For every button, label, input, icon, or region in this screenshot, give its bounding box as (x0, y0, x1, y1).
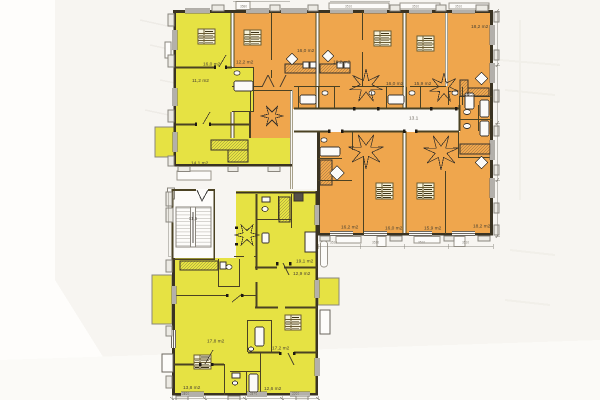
svg-text:3510: 3510 (418, 241, 425, 245)
svg-text:11,5: 11,5 (189, 216, 198, 221)
svg-text:13.1: 13.1 (409, 116, 419, 122)
svg-text:18,2 m2: 18,2 m2 (471, 24, 489, 30)
svg-text:12,9 m2: 12,9 m2 (293, 271, 311, 277)
svg-text:3510: 3510 (330, 241, 337, 245)
svg-text:3510: 3510 (345, 5, 352, 9)
svg-text:16,0 m2: 16,0 m2 (385, 226, 403, 232)
svg-text:16,2 m2: 16,2 m2 (333, 60, 351, 66)
svg-text:12,2 m2: 12,2 m2 (236, 60, 254, 66)
svg-text:12,6 m2: 12,6 m2 (264, 386, 282, 392)
svg-text:13,8 m2: 13,8 m2 (183, 385, 201, 391)
svg-text:15,9 m2: 15,9 m2 (414, 81, 432, 87)
svg-text:2980: 2980 (292, 392, 299, 396)
svg-text:11,2 m2: 11,2 m2 (192, 78, 209, 84)
svg-text:19,1 m2: 19,1 m2 (296, 259, 314, 265)
svg-text:17,8 m2: 17,8 m2 (207, 339, 225, 345)
svg-text:17,2 m2: 17,2 m2 (272, 346, 290, 352)
svg-text:3510: 3510 (372, 241, 379, 245)
svg-text:14,1 m2: 14,1 m2 (191, 161, 209, 167)
svg-text:15,9 m2: 15,9 m2 (424, 226, 442, 232)
svg-text:18,2 m2: 18,2 m2 (473, 224, 491, 230)
svg-text:3510: 3510 (462, 241, 469, 245)
svg-text:16,0 m2: 16,0 m2 (386, 81, 404, 87)
svg-text:3580: 3580 (182, 392, 189, 396)
svg-text:16,0 m2: 16,0 m2 (203, 62, 221, 68)
svg-text:3510: 3510 (412, 5, 419, 9)
svg-text:3640: 3640 (250, 392, 257, 396)
svg-text:3510: 3510 (455, 5, 462, 9)
svg-text:16,2 m2: 16,2 m2 (341, 225, 359, 231)
svg-text:16,0 m2: 16,0 m2 (297, 48, 315, 54)
svg-text:3580: 3580 (240, 5, 247, 9)
